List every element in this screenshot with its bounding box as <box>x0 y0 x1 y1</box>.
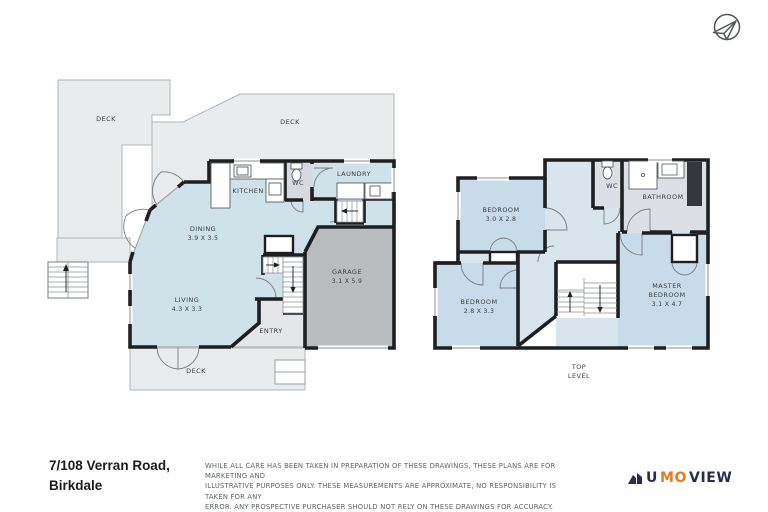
deck-steps <box>275 360 305 384</box>
room-label-laundry: LAUNDRY <box>337 170 371 178</box>
room-label-garage: GARAGE <box>332 268 362 276</box>
disclaimer-line: ERROR. ANY PROSPECTIVE PURCHASER SHOULD … <box>205 502 573 512</box>
property-address: 7/108 Verran Road, Birkdale <box>49 456 170 497</box>
toilet-icon-top <box>602 161 613 179</box>
brand-logo-text-u: U <box>646 470 658 486</box>
room-label-master-1: MASTER <box>652 282 682 290</box>
brand-logo-mark-icon <box>627 471 644 485</box>
ground-floor-plan: DECK DECK KITCHEN WC LAUNDRY DINING 3.9 … <box>48 80 397 390</box>
room-dims-dining: 3.9 X 3.5 <box>188 235 219 242</box>
room-label-wc-top: WC <box>606 182 618 190</box>
bathtub-icon <box>687 162 702 206</box>
disclaimer-line: ILLUSTRATIVE PURPOSES ONLY. THESE MEASUR… <box>205 481 573 501</box>
cooktop-icon <box>269 183 281 195</box>
brand-logo-text-view: VIEW <box>689 470 732 486</box>
level-label-top-1: TOP <box>571 363 586 371</box>
room-label-bathroom: BATHROOM <box>642 193 683 201</box>
room-dims-bedroom2: 2.8 X 3.3 <box>464 308 495 315</box>
floorplan-canvas: DECK DECK KITCHEN WC LAUNDRY DINING 3.9 … <box>0 0 768 512</box>
room-dims-garage: 3.1 X 5.9 <box>332 278 363 285</box>
exterior-stairs <box>48 262 88 298</box>
address-line-2: Birkdale <box>49 476 170 496</box>
room-dims-bedroom1: 3.0 X 2.8 <box>486 216 517 223</box>
compass-icon <box>714 15 740 40</box>
room-label-entry: ENTRY <box>259 327 282 335</box>
room-label-dining: DINING <box>190 225 216 233</box>
room-label-living: LIVING <box>175 296 200 304</box>
room-label-deck-top-left: DECK <box>96 115 116 123</box>
room-label-deck-top: DECK <box>280 118 300 126</box>
bedroom1-area <box>458 178 545 252</box>
floorplan-sheet: DECK DECK KITCHEN WC LAUNDRY DINING 3.9 … <box>0 0 768 512</box>
room-label-bedroom1: BEDROOM <box>482 206 519 214</box>
garage-stairs <box>337 201 363 222</box>
deck-landing-area <box>57 238 130 262</box>
laundry-tub-icon <box>370 186 380 196</box>
room-label-wc-ground: WC <box>292 179 304 187</box>
room-label-master-2: BEDROOM <box>648 291 685 299</box>
brand-logo: UMOVIEW <box>627 470 732 486</box>
disclaimer-text: WHILE ALL CARE HAS BEEN TAKEN IN PREPARA… <box>205 461 573 512</box>
garage-area <box>305 227 394 347</box>
room-label-bedroom2: BEDROOM <box>460 298 497 306</box>
disclaimer-line: WHILE ALL CARE HAS BEEN TAKEN IN PREPARA… <box>205 461 573 481</box>
address-line-1: 7/108 Verran Road, <box>49 456 170 476</box>
shower-icon <box>629 161 657 189</box>
brand-logo-text-mo: MO <box>660 470 687 486</box>
room-label-deck-bottom: DECK <box>186 367 206 375</box>
top-floor-plan: BEDROOM 3.0 X 2.8 WC BATHROOM MASTER BED… <box>432 157 710 380</box>
room-dims-living: 4.3 X 3.3 <box>172 306 203 313</box>
garage-door <box>318 346 388 351</box>
level-label-top-2: LEVEL <box>568 372 590 380</box>
room-label-kitchen: KITCHEN <box>232 187 263 195</box>
room-dims-master: 3.1 X 4.7 <box>652 301 683 308</box>
